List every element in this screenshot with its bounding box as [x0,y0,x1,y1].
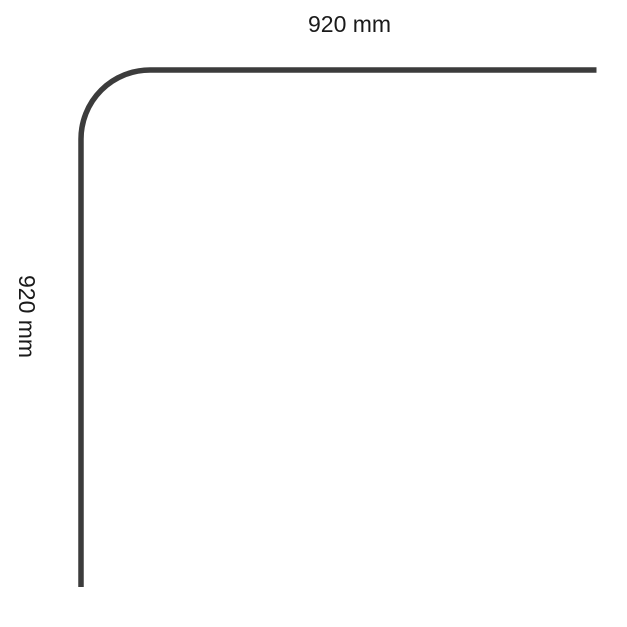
rail-corner-path [81,70,597,587]
rail-shape [0,0,627,627]
horizontal-dimension-label: 920 mm [308,11,391,37]
vertical-dimension-label: 920 mm [14,275,40,357]
rail-dimension-diagram: 920 mm 920 mm [0,0,627,627]
